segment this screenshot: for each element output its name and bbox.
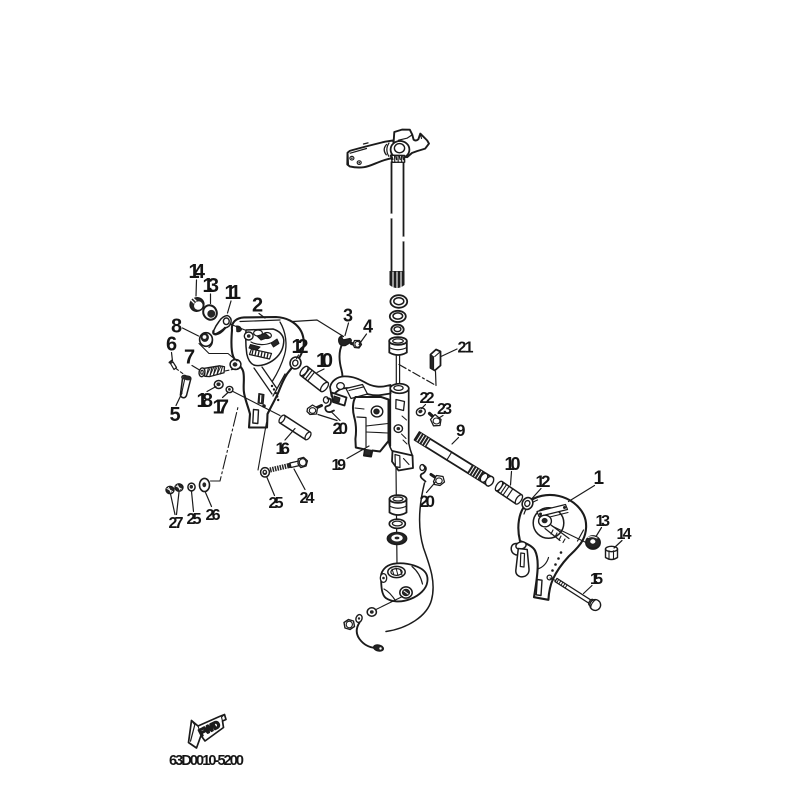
svg-text:5: 5 bbox=[170, 404, 181, 426]
svg-text:2: 2 bbox=[252, 295, 263, 317]
svg-text:7: 7 bbox=[184, 347, 195, 369]
svg-text:6: 6 bbox=[166, 334, 177, 356]
svg-text:25: 25 bbox=[269, 495, 284, 512]
svg-text:4: 4 bbox=[363, 317, 373, 337]
svg-text:11: 11 bbox=[225, 282, 242, 304]
svg-text:63D0010-5200: 63D0010-5200 bbox=[169, 753, 244, 769]
svg-text:17: 17 bbox=[213, 397, 230, 419]
svg-text:12: 12 bbox=[536, 472, 551, 491]
svg-text:16: 16 bbox=[276, 439, 291, 458]
svg-text:19: 19 bbox=[332, 457, 347, 474]
svg-text:9: 9 bbox=[456, 421, 465, 440]
svg-text:1: 1 bbox=[594, 468, 605, 489]
svg-text:13: 13 bbox=[596, 513, 611, 530]
svg-text:27: 27 bbox=[169, 515, 184, 532]
svg-text:26: 26 bbox=[206, 507, 221, 524]
svg-text:20: 20 bbox=[420, 492, 436, 511]
svg-text:20: 20 bbox=[333, 419, 349, 438]
svg-text:10: 10 bbox=[316, 350, 333, 372]
svg-text:14: 14 bbox=[617, 526, 632, 543]
svg-text:22: 22 bbox=[420, 390, 435, 407]
svg-text:25: 25 bbox=[187, 511, 202, 528]
svg-text:21: 21 bbox=[458, 340, 474, 357]
svg-text:24: 24 bbox=[300, 490, 315, 507]
svg-text:13: 13 bbox=[203, 275, 220, 297]
svg-text:10: 10 bbox=[505, 454, 521, 474]
svg-text:15: 15 bbox=[590, 571, 603, 588]
svg-text:3: 3 bbox=[343, 306, 353, 326]
svg-text:12: 12 bbox=[292, 336, 309, 358]
svg-text:18: 18 bbox=[197, 390, 214, 412]
svg-text:23: 23 bbox=[437, 401, 452, 418]
